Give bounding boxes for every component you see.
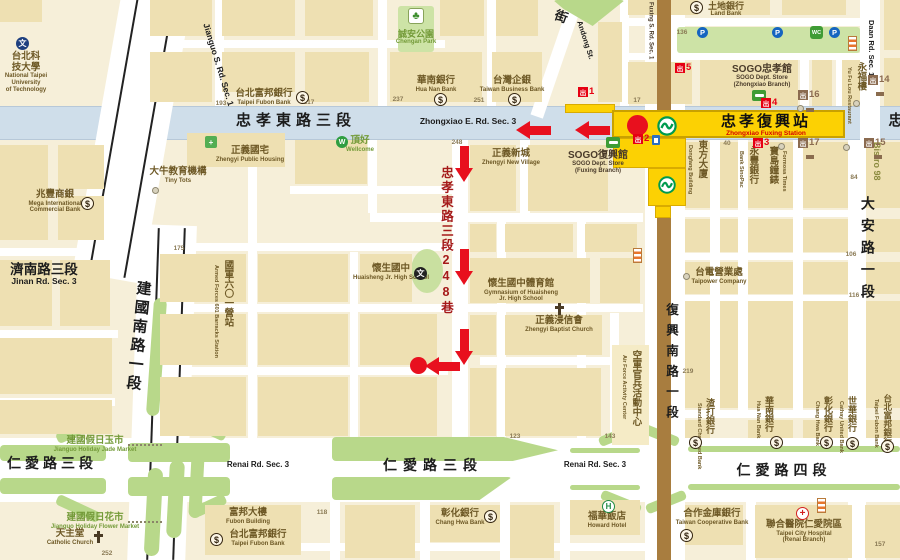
- dongfang-building-text: 東方大廈: [696, 140, 707, 178]
- zhengyi-housing: 正義國宅Zhengyi Public Housing: [216, 146, 284, 163]
- zhengyi-housing-text: 正義國宅: [231, 145, 269, 156]
- cross-bar: [555, 306, 564, 309]
- air-force-activity-center-en-text: Air Force Activity Center: [621, 355, 627, 419]
- sinopac-bank-en-text: Bank SinoPac: [738, 151, 744, 188]
- station-name-zh: 忠孝復興站: [690, 114, 842, 130]
- jinan-rd-label-subtext: Jinan Rd. Sec. 3: [10, 277, 78, 287]
- exit-number: 2: [644, 134, 649, 144]
- exit-number: 4: [772, 98, 777, 108]
- howard-hotel: 福華飯店Howard Hotel: [588, 512, 627, 529]
- cathay-bank-vert: 世華銀行: [847, 396, 857, 432]
- renai3-label-zh-left: 仁愛路三段: [7, 456, 97, 472]
- fubon-bank-bottom: 台北富邦銀行Taipei Fubon Bank: [229, 530, 286, 547]
- dollar-icon: $: [484, 510, 497, 523]
- formosa-times-en: Formosa Times: [781, 151, 787, 192]
- sogo-fuxing: SOGO復興館SOGO Dept. Store(Fuxing Branch): [568, 150, 628, 175]
- fuxing-rd-label-en: Fuxing S. Rd. Sec. 1: [647, 2, 654, 59]
- yongfulou-text: 永福樓: [855, 62, 866, 91]
- huanan-bank-vert-text: 華南銀行: [764, 396, 774, 432]
- air-force-activity-center-text: 空軍官兵活動中心: [630, 350, 641, 426]
- daan-rd-label-zh-text: 大安路一段: [860, 196, 876, 306]
- address-number: 118: [317, 509, 328, 516]
- dollar-icon: $: [820, 436, 833, 449]
- lane248-label: 忠孝東路三段248巷: [439, 166, 453, 316]
- ntut-subtext: National TaipeiUniversityof Technology: [5, 73, 47, 93]
- renai4-label-zh-text: 仁愛路四段: [737, 462, 832, 478]
- fubon-building-text: 富邦大樓: [229, 507, 267, 518]
- dongfang-building-en-text: Dongfang Building: [687, 145, 693, 194]
- dongfang-building: 東方大廈: [696, 140, 707, 178]
- address-number: 40: [723, 140, 730, 147]
- huaisheng-gym: 懷生國中體育館Gymnasium of HuaishengJr. High Sc…: [484, 279, 558, 303]
- huanan-bank-vert-en: Hua Nan Bank: [755, 401, 761, 438]
- tick-icon: [874, 155, 882, 159]
- grey-dot-icon: [797, 105, 804, 112]
- tiny-tots-text: 大牛教育機構: [149, 166, 206, 177]
- grey-dot-icon: [152, 187, 159, 194]
- howard-hotel-subtext: Howard Hotel: [588, 523, 627, 530]
- wen-black-icon: 文: [414, 267, 427, 280]
- changhwa-bank-bottom-text: 彰化銀行: [441, 508, 479, 519]
- arrow-part: [460, 146, 469, 168]
- huanan-bank-vert-en-text: Hua Nan Bank: [755, 401, 761, 438]
- wellcome-text: 頂好: [350, 135, 369, 146]
- road: [160, 243, 452, 251]
- armed-forces-601: 國軍六〇一營站: [222, 260, 233, 327]
- building-block: [600, 258, 640, 303]
- armed-forces-601-en-text: Armed Forces 601 Barracks Station: [213, 265, 219, 358]
- dongfang-building-en: Dongfang Building: [687, 145, 693, 194]
- road: [330, 502, 340, 560]
- building-block: [510, 505, 554, 558]
- road: [160, 367, 448, 375]
- sogo-zhongxiao-subtext: SOGO Dept. Store(Zhongxiao Branch): [732, 75, 792, 88]
- address-number: 248: [452, 139, 463, 146]
- address-number: 143: [605, 433, 616, 440]
- address-number: 136: [677, 29, 688, 36]
- fubon-bank-bottom-subtext: Taipei Fubon Bank: [229, 541, 286, 548]
- fuxing-rd-label-zh-text: 復興南路一段: [664, 303, 678, 426]
- route-arrow: [455, 146, 473, 182]
- elevator-door: [654, 138, 658, 143]
- exit-icon: 出: [761, 98, 771, 108]
- land-bank-subtext: Land Bank: [708, 11, 744, 18]
- p-icon: P: [772, 27, 783, 38]
- changhwa-bank-vert: 彰化銀行: [823, 396, 833, 432]
- building-block: [345, 505, 415, 558]
- tick-icon: [806, 108, 814, 112]
- zhengyi-baptist-church-text: 正義浸信會: [535, 315, 583, 326]
- building-block: [470, 368, 496, 436]
- exit-number: 14: [879, 75, 890, 85]
- building-block: [0, 0, 42, 22]
- building-block: [884, 0, 900, 50]
- building-block: [222, 0, 295, 36]
- huaisheng-school-text: 懷生國中: [372, 263, 410, 274]
- catholic-church-subtext: Catholic Church: [47, 540, 93, 547]
- land-bank-text: 土地銀行: [708, 1, 744, 11]
- daan-rd-label-en-top: Daan Rd. Sec. 1: [867, 20, 875, 76]
- hospital-renai: 聯合醫院仁愛院區Taipei City Hospital(Renai Branc…: [766, 520, 842, 544]
- jinan-rd-label: 濟南路三段Jinan Rd. Sec. 3: [10, 262, 78, 287]
- zhongxiao-rd-label-zh-text: 忠孝東路三段: [236, 112, 356, 129]
- address-number: 84: [850, 174, 857, 181]
- exit-icon: 出: [633, 134, 643, 144]
- map-canvas: 忠孝復興站 Zhongxiao Fuxing Station 忠孝東路三段Zho…: [0, 0, 900, 560]
- mega-bank-text: 兆豐商銀: [36, 189, 74, 200]
- building-block: [748, 262, 793, 294]
- leader-line: [128, 444, 162, 446]
- chengan-park: 誠安公園Chengan Park: [396, 29, 436, 46]
- exit-number: 3: [764, 138, 769, 148]
- mega-bank-subtext: Mega InternationalCommercial Bank: [28, 201, 81, 214]
- building-block: [685, 301, 710, 408]
- road: [855, 502, 865, 560]
- exit-number: 17: [809, 138, 820, 148]
- exit-5-marker: 出5: [675, 63, 691, 73]
- tiny-tots: 大牛教育機構Tiny Tots: [149, 167, 206, 184]
- road: [420, 502, 430, 560]
- building-block: [685, 219, 710, 252]
- fubon-bank-vert: 台北富邦銀行: [882, 394, 892, 445]
- lane248-label-text: 忠孝東路三段248巷: [439, 166, 453, 316]
- route-arrow: [575, 121, 610, 139]
- building-block: [866, 301, 900, 408]
- dollar-icon: $: [770, 436, 783, 449]
- green-sq-icon: +: [205, 136, 217, 148]
- wellcome-circ-icon: W: [336, 136, 348, 148]
- tick-icon: [876, 92, 884, 96]
- daan-rd-label-zh: 大安路一段: [859, 196, 875, 306]
- changhwa-bank-vert-text: 彰化銀行: [823, 396, 833, 432]
- grey-dot-icon: [853, 100, 860, 107]
- building-block: [803, 301, 848, 408]
- jade-market-subtext: Jianguo Holiday Jade Market: [54, 447, 137, 454]
- exit-icon: 出: [864, 138, 874, 148]
- arrow-part: [438, 362, 460, 371]
- huaisheng-gym-subtext: Gymnasium of HuaishengJr. High School: [484, 290, 558, 303]
- renai-median: [570, 485, 640, 490]
- taiwan-business-bank-text: 台灣企銀: [493, 75, 531, 86]
- exit-icon: 出: [753, 138, 763, 148]
- building-block: [0, 400, 112, 434]
- chengan-park-subtext: Chengan Park: [396, 39, 436, 46]
- dollar-icon: $: [689, 436, 702, 449]
- daan-rd-label-en-top-text: Daan Rd. Sec. 1: [867, 20, 876, 76]
- building-block: [803, 219, 848, 252]
- building-block: [505, 224, 573, 252]
- exit-15-marker: 出15: [864, 138, 886, 148]
- renai3-label-zh-center-text: 仁愛路三段: [383, 457, 483, 473]
- destination-marker: [410, 357, 427, 374]
- formosa-times-text: 寶島鐘錶: [767, 146, 778, 184]
- arrow-part: [455, 168, 473, 182]
- tree-icon: ♣: [408, 8, 424, 24]
- elevator-icon: [652, 135, 660, 145]
- zhongxiao-rd-partial: 忠: [888, 113, 900, 130]
- exit-number: 1: [589, 87, 594, 97]
- building-block: [720, 142, 738, 208]
- air-force-activity-center-en: Air Force Activity Center: [621, 355, 627, 419]
- road: [370, 213, 643, 222]
- sogo-zhongxiao-text: SOGO忠孝館: [732, 64, 792, 75]
- bus-window: [755, 94, 764, 98]
- grey-dot-icon: [843, 144, 850, 151]
- cathay-bank-vert-en-text: Cathay United Bank: [838, 401, 844, 453]
- tick-icon: [806, 155, 814, 159]
- arrow-part: [460, 329, 469, 351]
- renai-median: [0, 478, 106, 494]
- exit-icon: 出: [675, 63, 685, 73]
- building-block: [305, 0, 373, 36]
- arrow-part: [460, 249, 469, 271]
- road: [500, 502, 510, 560]
- building-block: [598, 22, 622, 102]
- cathay-bank-vert-text: 世華銀行: [847, 396, 857, 432]
- dollar-icon: $: [881, 440, 894, 453]
- hospital-renai-subtext: Taipei City Hospital(Renai Branch): [766, 531, 842, 544]
- cross-bar: [558, 303, 561, 315]
- huanan-bank-vert: 華南銀行: [764, 396, 774, 432]
- building-block: [865, 505, 900, 558]
- zhengyi-baptist-church-subtext: Zhengyi Baptist Church: [525, 327, 593, 334]
- toilet-icon: WC: [810, 26, 823, 39]
- p-icon: P: [829, 27, 840, 38]
- renai3-label-zh-center: 仁愛路三段: [383, 458, 483, 474]
- building-block: [160, 377, 246, 436]
- renai3-label-en-right: Renai Rd. Sec. 3: [564, 461, 626, 470]
- leader-line: [128, 521, 162, 523]
- armed-forces-601-en: Armed Forces 601 Barracks Station: [213, 265, 219, 358]
- wen-navy-icon: 文: [16, 37, 29, 50]
- zhongxiao-rd-partial-text: 忠: [888, 112, 900, 129]
- taipower: 台電營業處Taipower Company: [692, 268, 747, 285]
- renai4-label-zh: 仁愛路四段: [737, 463, 832, 479]
- mega-bank: 兆豐商銀Mega InternationalCommercial Bank: [28, 190, 81, 214]
- zhengyi-housing-subtext: Zhengyi Public Housing: [216, 157, 284, 164]
- dollar-icon: $: [434, 93, 447, 106]
- building-block: [440, 0, 484, 36]
- station-name: 忠孝復興站 Zhongxiao Fuxing Station: [690, 114, 842, 137]
- road: [452, 140, 468, 445]
- exit-number: 5: [686, 63, 691, 73]
- building-block: [720, 219, 738, 252]
- chengan-park-text: 誠安公園: [398, 29, 434, 39]
- exit-icon: 出: [798, 90, 808, 100]
- taipower-subtext: Taipower Company: [692, 279, 747, 286]
- road: [248, 140, 257, 438]
- zhengyi-new-village-subtext: Zhengyi New Village: [482, 160, 540, 167]
- arrow-part: [425, 357, 439, 375]
- zhongxiao-rd-label-en: Zhongxiao E. Rd. Sec. 3: [420, 117, 516, 127]
- coop-bank-subtext: Taiwan Cooperative Bank: [676, 520, 749, 527]
- building-block: [585, 224, 637, 252]
- fubon-bank-top-text: 台北富邦銀行: [235, 88, 292, 99]
- building-block: [470, 224, 496, 252]
- fubon-bank-vert-en-text: Taipei Fubon Bank: [873, 399, 879, 448]
- changhwa-bank-vert-en-text: Chang Hwa Bank: [814, 401, 820, 446]
- formosa-times: 寶島鐘錶: [767, 146, 778, 184]
- exit-4-marker: 出4: [761, 98, 777, 108]
- zhengyi-baptist-church: 正義浸信會Zhengyi Baptist Church: [525, 316, 593, 333]
- wellcome-subtext: Wellcome: [346, 147, 374, 154]
- catholic-church: 天主堂Catholic Church: [47, 529, 93, 546]
- road: [793, 140, 803, 418]
- tiny-tots-subtext: Tiny Tots: [149, 178, 206, 185]
- exit-17-marker: 出17: [798, 138, 820, 148]
- jade-market-text: 建國假日玉市: [66, 435, 123, 446]
- standard-chartered: 渣打銀行: [705, 398, 715, 434]
- flag-icon: [817, 498, 826, 513]
- yongfulou: 永福樓: [855, 62, 866, 91]
- building-block: [748, 219, 793, 252]
- andong-st-label-en: Andong St.: [575, 20, 595, 61]
- building-block: [258, 377, 348, 436]
- road: [560, 502, 570, 560]
- grey-dot-icon: [778, 143, 785, 150]
- changhwa-bank-bottom: 彰化銀行Chang Hwa Bank: [435, 509, 484, 526]
- building-block: [58, 145, 104, 189]
- address-number: 251: [474, 97, 485, 104]
- exit-icon: 出: [868, 75, 878, 85]
- renai-median: [570, 448, 640, 453]
- exit-1-marker: 出1: [578, 87, 594, 97]
- dollar-icon: $: [846, 437, 859, 450]
- coop-bank-text: 合作金庫銀行: [683, 508, 740, 519]
- building-block: [720, 301, 738, 408]
- address-number: 116: [849, 292, 860, 299]
- address-number: 193: [216, 100, 227, 107]
- station-structure: [565, 104, 615, 113]
- jinan-rd-label-text: 濟南路三段: [10, 262, 78, 277]
- arrow-part: [455, 271, 473, 285]
- arrow-part: [529, 126, 551, 135]
- building-block: [305, 52, 369, 102]
- mrt-fuxing-line: [657, 0, 671, 110]
- cathay-bank-vert-en: Cathay United Bank: [838, 401, 844, 453]
- building-block: [222, 52, 295, 92]
- zhongxiao-rd-label-zh: 忠孝東路三段: [236, 113, 356, 130]
- dollar-icon: $: [296, 91, 309, 104]
- sogo-fuxing-text: SOGO復興館: [568, 150, 628, 161]
- road: [0, 330, 118, 338]
- building-block: [470, 315, 496, 355]
- address-number: 157: [875, 541, 886, 548]
- fubon-bank-bottom-text: 台北富邦銀行: [229, 529, 286, 540]
- mrt-icon: [658, 176, 676, 194]
- building-block: [505, 368, 601, 436]
- building-block: [360, 377, 437, 436]
- route-arrow: [455, 249, 473, 285]
- fubon-bank-top-subtext: Taipei Fubon Bank: [235, 100, 292, 107]
- huanan-bank-top-text: 華南銀行: [417, 75, 455, 86]
- huanan-bank-top-subtext: Hua Nan Bank: [416, 87, 457, 94]
- sogo-fuxing-subtext: SOGO Dept. Store(Fuxing Branch): [568, 161, 628, 174]
- changhwa-bank-bottom-subtext: Chang Hwa Bank: [435, 520, 484, 527]
- building-block: [150, 52, 212, 102]
- yongfulou-en: Yu Fu Lou Restaurant: [846, 67, 852, 124]
- air-force-activity-center: 空軍官兵活動中心: [630, 350, 641, 426]
- building-block: [496, 0, 538, 36]
- address-number: 106: [846, 251, 857, 258]
- sogo-zhongxiao: SOGO忠孝館SOGO Dept. Store(Zhongxiao Branch…: [732, 64, 792, 89]
- bus-window: [609, 141, 618, 145]
- fubon-building-subtext: Fubon Building: [226, 519, 270, 526]
- building-block: [258, 254, 348, 302]
- fuxing-rd-label-en-text: Fuxing S. Rd. Sec. 1: [647, 2, 653, 59]
- p-icon: P: [697, 27, 708, 38]
- exit-icon: 出: [798, 138, 808, 148]
- fubon-bank-top: 台北富邦銀行Taipei Fubon Bank: [235, 89, 292, 106]
- cross-bar: [94, 534, 103, 537]
- cross-icon: [93, 531, 103, 543]
- h-circ-icon: H: [602, 500, 615, 513]
- station-name-en: Zhongxiao Fuxing Station: [690, 130, 842, 137]
- sinopac-bank: 永豐銀行: [747, 146, 758, 184]
- sinopac-bank-text: 永豐銀行: [747, 146, 758, 184]
- taiwan-business-bank: 台灣企銀Taiwan Business Bank: [480, 76, 545, 93]
- renai3-label-en-left-text: Renai Rd. Sec. 3: [227, 460, 289, 469]
- huaisheng-gym-text: 懷生國中體育館: [488, 278, 555, 289]
- address-number: 123: [510, 433, 521, 440]
- address-number: 252: [102, 550, 113, 557]
- armed-forces-601-text: 國軍六〇一營站: [222, 260, 233, 327]
- address-number: 175: [174, 245, 185, 252]
- route-arrow: [425, 357, 460, 375]
- arrow-part: [516, 121, 530, 139]
- zhengyi-new-village-text: 正義新城: [492, 148, 530, 159]
- formosa-times-en-text: Formosa Times: [781, 151, 787, 192]
- standard-chartered-text: 渣打銀行: [705, 398, 715, 434]
- exit-3-marker: 出3: [753, 138, 769, 148]
- exit-number: 16: [809, 90, 820, 100]
- cross-icon: [554, 303, 564, 315]
- fubon-bank-vert-en: Taipei Fubon Bank: [873, 399, 879, 448]
- zhengyi-new-village: 正義新城Zhengyi New Village: [482, 149, 540, 166]
- building-block: [782, 0, 846, 15]
- grey-dot-icon: [683, 273, 690, 280]
- exit-2-marker: 出2: [633, 134, 649, 144]
- building-block: [803, 142, 848, 208]
- huanan-bank-top: 華南銀行Hua Nan Bank: [416, 76, 457, 93]
- fuxing-rd-label-zh: 復興南路一段: [664, 303, 678, 426]
- cross-bar: [97, 531, 100, 543]
- road: [378, 0, 387, 106]
- dollar-icon: $: [680, 529, 693, 542]
- exit-14-marker: 出14: [868, 75, 890, 85]
- address-number: 219: [683, 368, 694, 375]
- zhongxiao-rd-label-en-text: Zhongxiao E. Rd. Sec. 3: [420, 116, 516, 126]
- taipower-text: 台電營業處: [695, 267, 743, 278]
- flower-market-text: 建國假日花市: [66, 512, 123, 523]
- flag-icon: [633, 248, 642, 263]
- renai-median: [128, 477, 230, 496]
- route-arrow: [516, 121, 551, 139]
- building-block: [0, 338, 112, 394]
- flag-icon: [848, 36, 857, 51]
- building-block: [748, 301, 793, 408]
- sinopac-bank-en: Bank SinoPac: [738, 151, 744, 188]
- fubon-building: 富邦大樓Fubon Building: [226, 508, 270, 525]
- renai-median: [688, 446, 900, 452]
- yongfulou-en-text: Yu Fu Lou Restaurant: [846, 67, 852, 124]
- catholic-church-text: 天主堂: [56, 528, 85, 539]
- hosp-cross-icon: +: [796, 507, 809, 520]
- wellcome: 頂好Wellcome: [346, 136, 374, 153]
- dollar-icon: $: [508, 93, 521, 106]
- arrow-part: [575, 121, 589, 139]
- address-number: 17: [633, 97, 640, 104]
